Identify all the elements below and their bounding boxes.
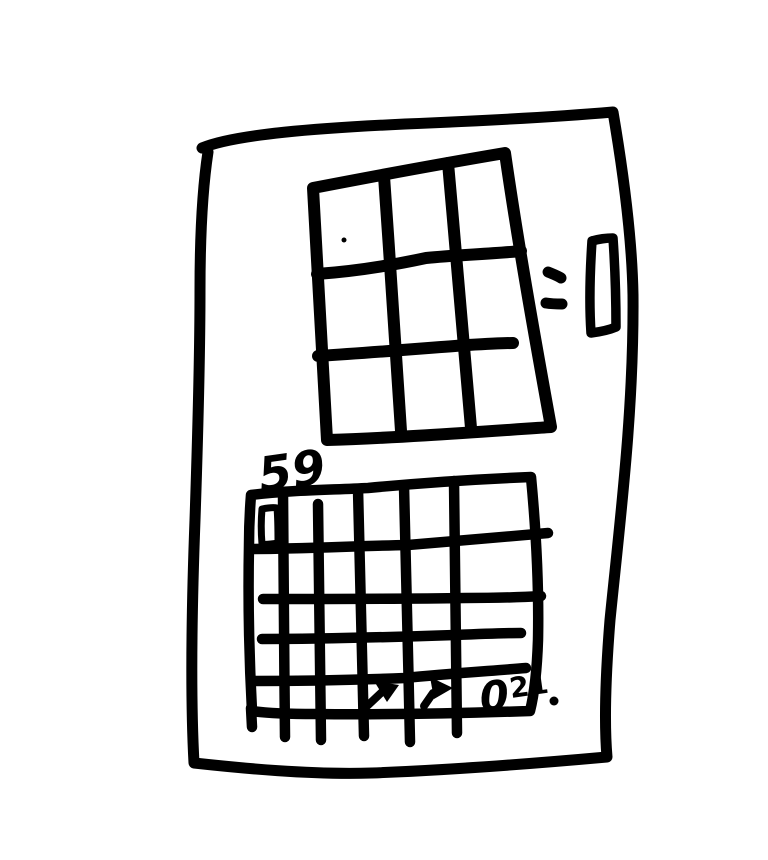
cursor-arrow-2-head (430, 677, 453, 699)
bottom-grid-vline-1 (283, 494, 285, 737)
top-grid-dot-icon (342, 238, 347, 243)
bottom-grid-hline-3 (262, 633, 521, 639)
bottom-grid-vline-5 (454, 481, 457, 733)
scrollbar-corner-dot (588, 236, 598, 246)
bottom-grid-left-tail (251, 708, 252, 727)
top-grid-vline-1 (384, 176, 401, 431)
ink-layer: 59 0 21 (192, 112, 633, 773)
top-grid-border (313, 153, 551, 440)
bottom-grid-vline-4 (404, 486, 410, 742)
top-grid (313, 153, 551, 440)
bottom-grid-vline-2 (318, 504, 321, 740)
bottom-grid-hline-2 (263, 596, 541, 599)
top-grid-hline-2 (318, 343, 513, 356)
zero-value-label: 0 (478, 671, 511, 722)
cursor-arrow-icon-1 (365, 681, 399, 708)
cell-marker-rect-icon (261, 508, 278, 545)
cursor-arrow-2-tail (424, 693, 433, 706)
period-dot-icon (550, 697, 559, 706)
zero-superscript-label: 21 (507, 667, 550, 705)
side-dash-top-icon (548, 272, 561, 278)
scrollbar-rect-icon (590, 238, 616, 333)
bottom-grid-vline-3 (358, 489, 364, 736)
cursor-arrow-icon-2 (424, 677, 453, 706)
top-grid-hline-1 (317, 251, 521, 274)
sketch-canvas: 59 0 21 (0, 0, 768, 860)
top-grid-vline-2 (448, 163, 471, 428)
bottom-grid-title-label: 59 (255, 439, 329, 504)
bottom-grid-hline-1 (251, 533, 548, 549)
side-dash-bottom-icon (546, 303, 562, 304)
sketch-drawing: 59 0 21 (0, 0, 768, 860)
